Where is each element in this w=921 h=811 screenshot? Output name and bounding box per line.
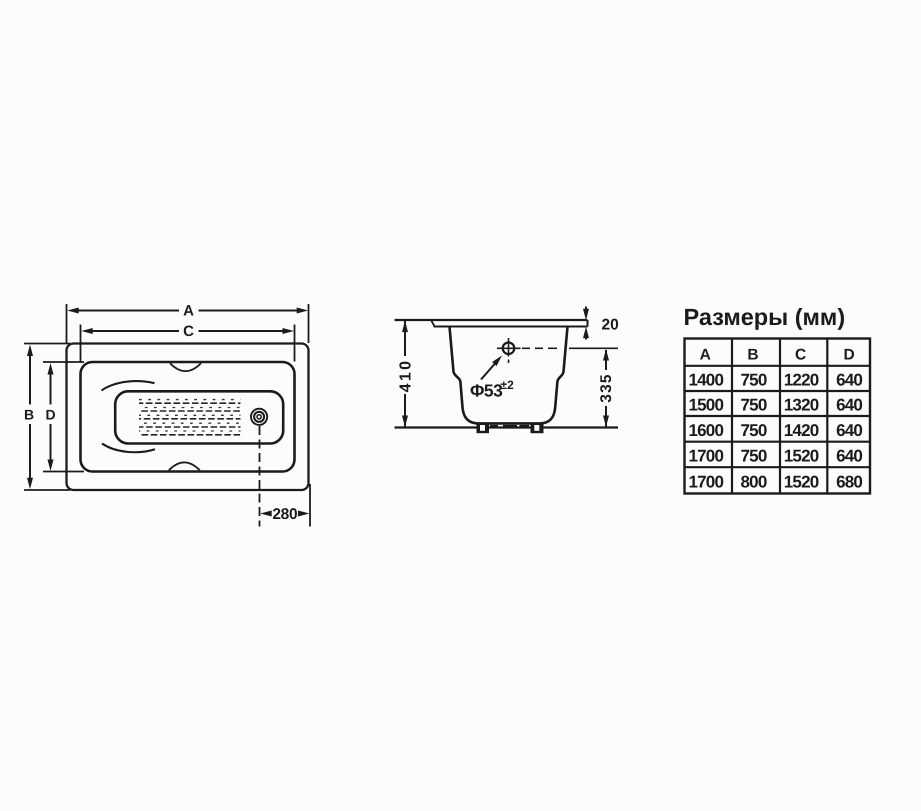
- svg-text:1700: 1700: [688, 473, 723, 492]
- svg-text:680: 680: [836, 473, 862, 492]
- svg-text:Φ53: Φ53: [470, 381, 503, 401]
- svg-text:800: 800: [741, 473, 767, 492]
- svg-text:335: 335: [598, 373, 615, 402]
- svg-text:C: C: [183, 323, 194, 340]
- svg-text:1400: 1400: [688, 371, 723, 390]
- svg-text:750: 750: [741, 447, 767, 466]
- svg-text:750: 750: [741, 371, 767, 390]
- svg-text:1220: 1220: [784, 371, 819, 390]
- svg-text:A: A: [700, 346, 711, 363]
- svg-text:D: D: [843, 346, 854, 363]
- svg-text:D: D: [45, 406, 55, 422]
- svg-text:1520: 1520: [784, 473, 819, 492]
- svg-text:1320: 1320: [784, 396, 819, 415]
- svg-text:20: 20: [602, 317, 619, 334]
- svg-text:1520: 1520: [784, 447, 819, 466]
- svg-text:750: 750: [741, 421, 767, 440]
- svg-text:±2: ±2: [501, 378, 515, 392]
- svg-text:1700: 1700: [688, 447, 723, 466]
- svg-text:640: 640: [836, 371, 862, 390]
- svg-text:B: B: [24, 406, 34, 422]
- svg-text:Размеры (мм): Размеры (мм): [684, 304, 846, 330]
- svg-text:B: B: [747, 346, 758, 363]
- svg-text:A: A: [183, 303, 194, 320]
- svg-text:640: 640: [836, 447, 862, 466]
- svg-text:1420: 1420: [784, 421, 819, 440]
- svg-text:1500: 1500: [688, 396, 723, 415]
- svg-text:410: 410: [397, 359, 414, 393]
- svg-text:280: 280: [272, 506, 297, 523]
- svg-text:750: 750: [741, 396, 767, 415]
- svg-text:1600: 1600: [688, 421, 723, 440]
- svg-text:C: C: [795, 346, 806, 363]
- svg-text:640: 640: [836, 421, 862, 440]
- svg-text:640: 640: [836, 396, 862, 415]
